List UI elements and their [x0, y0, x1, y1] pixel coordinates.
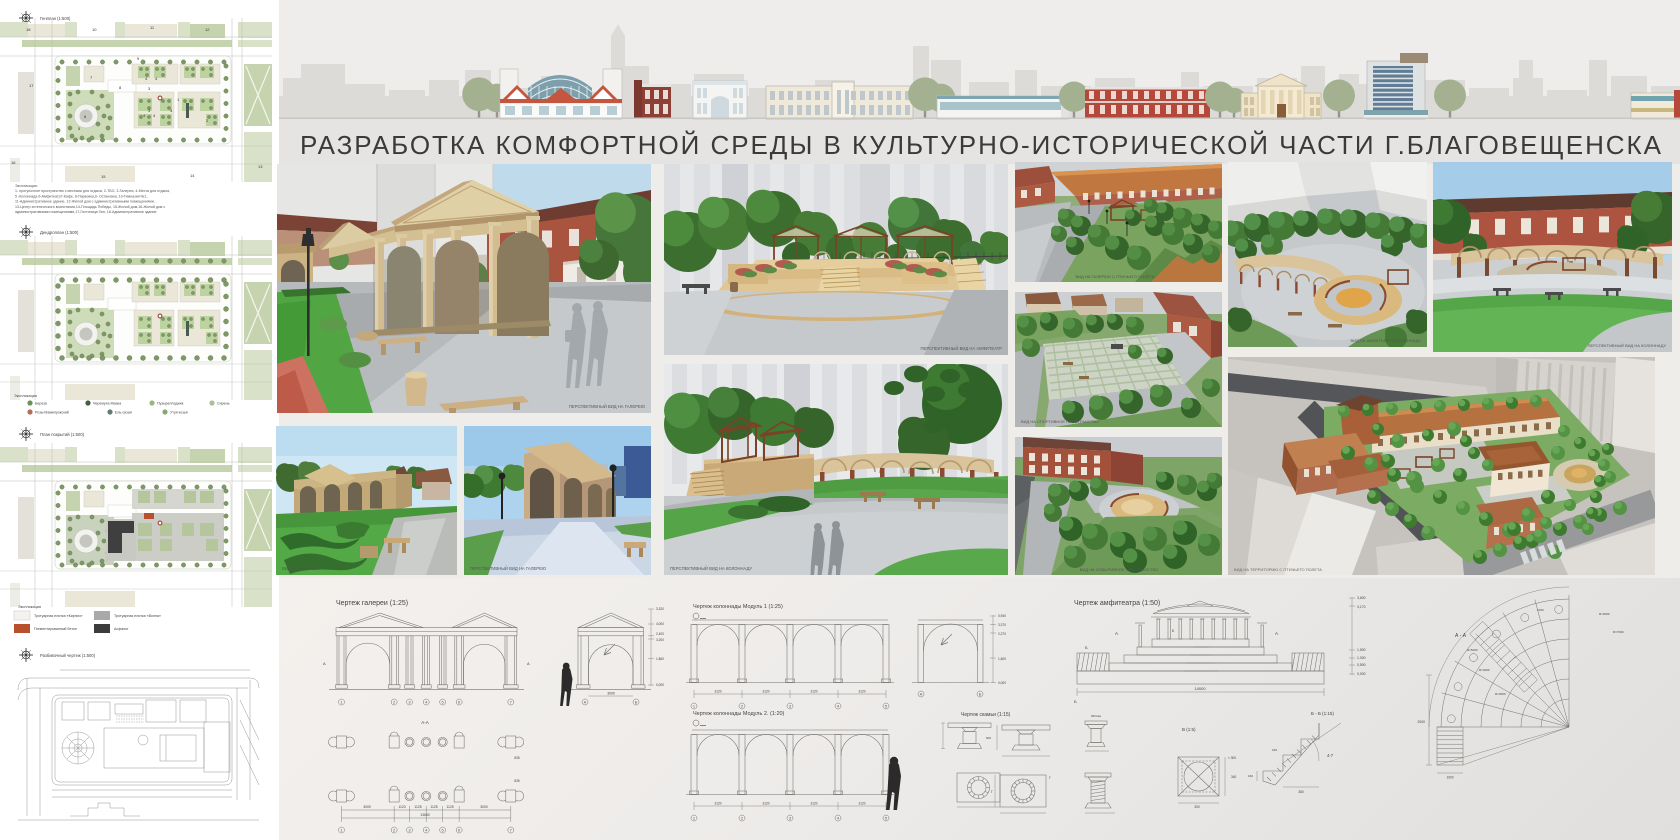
- svg-text:R=7000: R=7000: [1613, 630, 1624, 634]
- svg-text:11-Административное здание, 12: 11-Административное здание, 12-Жилой дом…: [15, 200, 155, 204]
- svg-text:1125: 1125: [414, 805, 421, 809]
- svg-text:2: 2: [741, 704, 744, 709]
- svg-text:3120: 3120: [714, 690, 721, 694]
- svg-text:13-Центр эстетического воспита: 13-Центр эстетического воспитания,14-Пло…: [15, 205, 165, 209]
- svg-text:× 300: × 300: [1228, 756, 1236, 760]
- svg-text:1: 1: [340, 700, 343, 705]
- svg-text:6: 6: [458, 828, 461, 833]
- svg-text:R=6000: R=6000: [1599, 612, 1610, 616]
- svg-text:3,600: 3,600: [1357, 596, 1366, 600]
- svg-text:Сирень: Сирень: [217, 402, 230, 406]
- svg-text:ВИД НА ГАЛЕРЕЮ С ПТИЧЬЕГО ПОЛЕ: ВИД НА ГАЛЕРЕЮ С ПТИЧЬЕГО ПОЛЕТА: [1076, 274, 1155, 279]
- svg-text:500: 500: [986, 736, 991, 740]
- svg-text:Пигментированный бетон: Пигментированный бетон: [34, 627, 77, 631]
- svg-text:3120: 3120: [858, 802, 865, 806]
- svg-text:А: А: [1115, 631, 1118, 636]
- svg-text:1123: 1123: [398, 805, 405, 809]
- svg-text:3120: 3120: [714, 802, 721, 806]
- svg-text:Разбивочный чертеж (1:500): Разбивочный чертеж (1:500): [40, 653, 96, 658]
- svg-text:2: 2: [393, 700, 396, 705]
- svg-text:2,400: 2,400: [656, 632, 664, 636]
- svg-text:ПЕРСПЕКТИВНЫЙ ВИД НА КОЛОННАДУ: ПЕРСПЕКТИВНЫЙ ВИД НА КОЛОННАДУ: [1588, 343, 1667, 348]
- svg-text:Тротуарная плитка «Волна»: Тротуарная плитка «Волна»: [114, 614, 161, 618]
- svg-text:0,000: 0,000: [656, 683, 664, 687]
- svg-text:160: 160: [1248, 774, 1253, 778]
- svg-text:1- прогулочное пространство с: 1- прогулочное пространство с местами дл…: [15, 189, 170, 193]
- svg-text:Чертеж скамьи (1:15): Чертеж скамьи (1:15): [961, 712, 1011, 718]
- svg-text:3000: 3000: [480, 805, 488, 809]
- svg-text:1: 1: [693, 816, 696, 821]
- svg-text:А - А: А - А: [1455, 633, 1467, 639]
- svg-text:Розы Мамилуокский: Розы Мамилуокский: [35, 411, 69, 415]
- svg-text:3000: 3000: [607, 692, 615, 696]
- svg-text:17: 17: [29, 83, 34, 88]
- svg-text:0,500: 0,500: [1357, 663, 1366, 667]
- svg-text:4: 4: [425, 700, 428, 705]
- svg-text:Утуя козья: Утуя козья: [170, 411, 188, 415]
- svg-text:3: 3: [408, 700, 411, 705]
- svg-text:ПЕРСПЕКТИВНЫЙ ВИД НА ГАЛЕРЕЮ: ПЕРСПЕКТИВНЫЙ ВИД НА ГАЛЕРЕЮ: [569, 404, 646, 409]
- svg-text:А: А: [527, 661, 530, 666]
- svg-text:1,860: 1,860: [656, 657, 664, 661]
- svg-text:Б: Б: [1074, 699, 1077, 704]
- svg-text:3: 3: [408, 828, 411, 833]
- svg-text:0,000: 0,000: [998, 681, 1006, 685]
- svg-text:Тротуарная плитка «Кирпич»: Тротуарная плитка «Кирпич»: [34, 614, 83, 618]
- svg-text:4: 4: [837, 704, 840, 709]
- svg-text:Пузыреплодник: Пузыреплодник: [157, 402, 184, 406]
- svg-text:А: А: [1275, 631, 1278, 636]
- svg-text:3120: 3120: [810, 802, 817, 806]
- svg-text:Ель сизая: Ель сизая: [115, 411, 132, 415]
- svg-text:1000: 1000: [1446, 776, 1453, 780]
- svg-text:А-А: А-А: [421, 720, 429, 725]
- svg-text:ВИД НА ТЕРРИТОРИЮ С ПТИЧЬЕГО П: ВИД НА ТЕРРИТОРИЮ С ПТИЧЬЕГО ПОЛЕТА: [1234, 567, 1322, 572]
- svg-text:ВИД НА ГАЛЕРЕЮ: ВИД НА ГАЛЕРЕЮ: [282, 566, 320, 571]
- svg-text:300: 300: [1194, 805, 1200, 809]
- svg-text:3,200: 3,200: [656, 638, 664, 642]
- svg-text:Г: Г: [1049, 776, 1051, 780]
- svg-text:R=4000: R=4000: [1479, 668, 1490, 672]
- svg-text:2000: 2000: [1417, 720, 1425, 724]
- svg-text:0,000: 0,000: [1357, 672, 1366, 676]
- svg-text:Чертеж галереи (1:25): Чертеж галереи (1:25): [336, 600, 408, 607]
- svg-text:А: А: [584, 700, 587, 705]
- svg-text:18: 18: [26, 27, 31, 32]
- svg-text:835: 835: [514, 779, 520, 783]
- svg-text:Дендроплан (1:500): Дендроплан (1:500): [40, 230, 79, 235]
- svg-text:Б: Б: [1085, 645, 1088, 650]
- svg-text:1,600: 1,600: [998, 657, 1006, 661]
- svg-text:А: А: [323, 661, 326, 666]
- svg-text:РАЗРАБОТКА КОМФОРТНОЙ СРЕДЫ: РАЗРАБОТКА КОМФОРТНОЙ СРЕДЫ В КУЛЬТУРНО-…: [300, 130, 1667, 160]
- svg-text:Черемуха Маака: Черемуха Маака: [93, 402, 121, 406]
- svg-text:3120: 3120: [858, 690, 865, 694]
- svg-text:3120: 3120: [810, 690, 817, 694]
- svg-text:ПЕРСПЕКТИВНЫЙ ВИД НА ГАЛЕРЕЮ: ПЕРСПЕКТИВНЫЙ ВИД НА ГАЛЕРЕЮ: [470, 566, 547, 571]
- svg-text:5 -Колоннада 6-Амфитеатр7-Кафе: 5 -Колоннада 6-Амфитеатр7-Кафе, 8-Парков…: [15, 194, 148, 198]
- svg-text:3,320: 3,320: [656, 607, 664, 611]
- svg-text:4: 4: [837, 816, 840, 821]
- svg-text:2: 2: [741, 816, 744, 821]
- svg-text:1: 1: [693, 704, 696, 709]
- svg-text:3,370: 3,370: [998, 623, 1006, 627]
- svg-text:Б: Б: [979, 692, 982, 697]
- svg-text:3,170: 3,170: [1357, 605, 1366, 609]
- svg-text:1,500: 1,500: [1357, 648, 1366, 652]
- svg-text:15: 15: [101, 174, 106, 179]
- svg-text:16: 16: [11, 160, 16, 165]
- svg-text:R=5000: R=5000: [1467, 648, 1478, 652]
- svg-text:3120: 3120: [762, 690, 769, 694]
- svg-text:6: 6: [458, 700, 461, 705]
- svg-text:Экспликация: Экспликация: [18, 605, 41, 609]
- svg-text:1125: 1125: [446, 805, 453, 809]
- svg-text:160: 160: [1272, 748, 1277, 752]
- svg-text:1: 1: [340, 828, 343, 833]
- svg-text:Экспликация:: Экспликация:: [15, 184, 38, 188]
- svg-text:Чертеж колоннады Модуль 2. (1:: Чертеж колоннады Модуль 2. (1:20): [693, 711, 785, 717]
- svg-text:В (1:5): В (1:5): [1182, 727, 1196, 732]
- svg-text:План покрытий (1:500): План покрытий (1:500): [40, 432, 85, 437]
- svg-text:300×мм: 300×мм: [1091, 714, 1101, 718]
- svg-text:3000: 3000: [363, 805, 371, 809]
- svg-text:835: 835: [514, 756, 520, 760]
- svg-text:2: 2: [393, 828, 396, 833]
- svg-text:1,000: 1,000: [1357, 656, 1366, 660]
- svg-text:ВИД НА СПОРТИВНОЕ ПРОСТРАНСТВО: ВИД НА СПОРТИВНОЕ ПРОСТРАНСТВО: [1021, 419, 1099, 424]
- svg-text:А: А: [920, 692, 923, 697]
- svg-text:ПЕРСПЕКТИВНЫЙ ВИД НА КОЛОННАДУ: ПЕРСПЕКТИВНЫЙ ВИД НА КОЛОННАДУ: [670, 566, 752, 571]
- svg-text:7: 7: [510, 700, 513, 705]
- svg-text:3: 3: [789, 816, 792, 821]
- svg-text:административными помещениями,: административными помещениями,17-Гостини…: [15, 210, 157, 214]
- svg-text:12: 12: [205, 27, 210, 32]
- svg-text:1125: 1125: [430, 805, 437, 809]
- svg-text:Экспликация: Экспликация: [14, 394, 37, 398]
- svg-text:3120: 3120: [762, 802, 769, 806]
- svg-text:1000: 1000: [1537, 608, 1544, 612]
- svg-text:4,000: 4,000: [656, 622, 664, 626]
- svg-text:10: 10: [92, 27, 97, 32]
- svg-text:Чертеж амфитеатра (1:50): Чертеж амфитеатра (1:50): [1074, 600, 1160, 607]
- svg-text:ПЕРСПЕКТИВНЫЙ ВИД НА АМФИТЕАТР: ПЕРСПЕКТИВНЫЙ ВИД НА АМФИТЕАТР: [921, 346, 1003, 351]
- svg-text:4-7: 4-7: [1327, 753, 1334, 758]
- svg-text:14: 14: [190, 173, 195, 178]
- svg-text:3: 3: [789, 704, 792, 709]
- svg-text:Береза: Береза: [35, 402, 47, 406]
- svg-text:ВИД НА СОБЫТИЙНОЕ ПРОСТРАНСТВО: ВИД НА СОБЫТИЙНОЕ ПРОСТРАНСТВО: [1080, 567, 1159, 572]
- svg-text:380: 380: [1298, 790, 1304, 794]
- svg-text:13660: 13660: [420, 813, 430, 817]
- svg-text:Б - Б (1:15): Б - Б (1:15): [1311, 711, 1334, 716]
- svg-text:Асфальт: Асфальт: [114, 627, 129, 631]
- svg-text:0,940: 0,940: [998, 614, 1006, 618]
- svg-text:Б: Б: [635, 700, 638, 705]
- svg-text:4: 4: [425, 828, 428, 833]
- svg-text:Б: Б: [1172, 629, 1175, 633]
- svg-text:5: 5: [885, 704, 888, 709]
- svg-text:Чертеж колоннады Модуль 1 (1:2: Чертеж колоннады Модуль 1 (1:25): [693, 604, 783, 610]
- svg-text:13: 13: [258, 164, 263, 169]
- svg-text:Г: Г: [991, 790, 993, 794]
- svg-text:340: 340: [1231, 775, 1237, 779]
- svg-text:14000: 14000: [1194, 686, 1206, 691]
- svg-text:5: 5: [885, 816, 888, 821]
- svg-text:Генплан (1:500): Генплан (1:500): [40, 16, 71, 21]
- svg-text:5: 5: [442, 828, 445, 833]
- svg-text:5: 5: [442, 700, 445, 705]
- svg-text:2,270: 2,270: [998, 632, 1006, 636]
- svg-text:ВИД НА АМФИТЕАТР И КОЛОННАДУ: ВИД НА АМФИТЕАТР И КОЛОННАДУ: [1350, 338, 1421, 343]
- svg-text:7: 7: [510, 828, 513, 833]
- svg-text:R=3000: R=3000: [1495, 692, 1506, 696]
